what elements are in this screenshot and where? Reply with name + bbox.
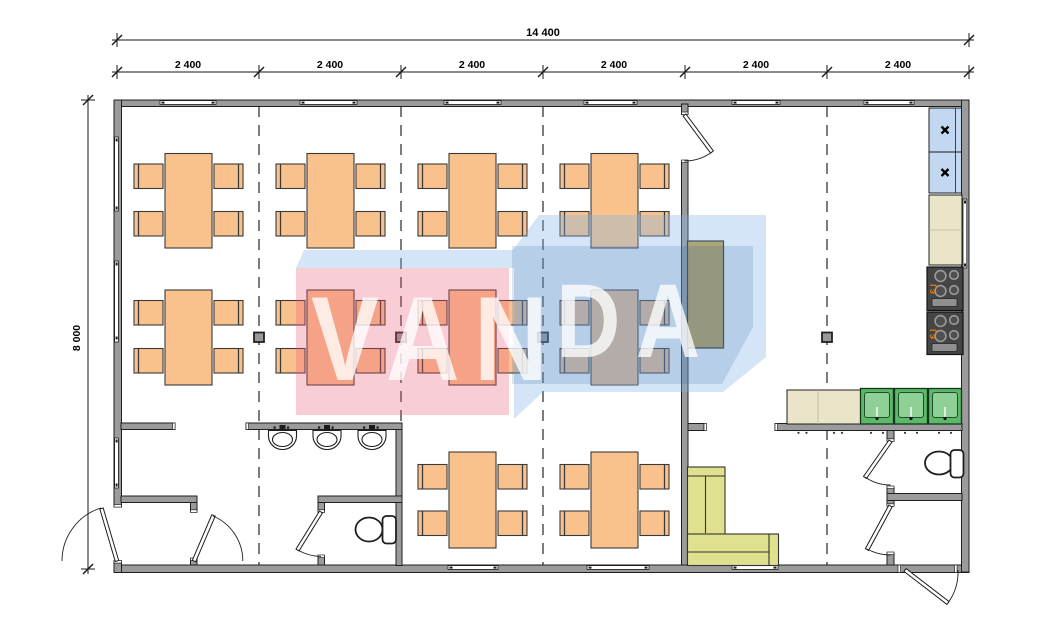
svg-text:2 400: 2 400: [317, 59, 343, 71]
svg-text:8 000: 8 000: [71, 325, 83, 351]
svg-text:2 400: 2 400: [885, 59, 911, 71]
svg-text:2 400: 2 400: [601, 59, 627, 71]
svg-text:2 400: 2 400: [175, 59, 201, 71]
svg-text:Гэ: Гэ: [928, 284, 938, 294]
svg-text:14 400: 14 400: [526, 27, 560, 39]
svg-text:2 400: 2 400: [743, 59, 769, 71]
svg-text:DA: DA: [556, 262, 716, 379]
svg-text:VAN: VAN: [311, 271, 562, 406]
svg-text:Гэ: Гэ: [928, 329, 938, 339]
svg-text:2 400: 2 400: [459, 59, 485, 71]
